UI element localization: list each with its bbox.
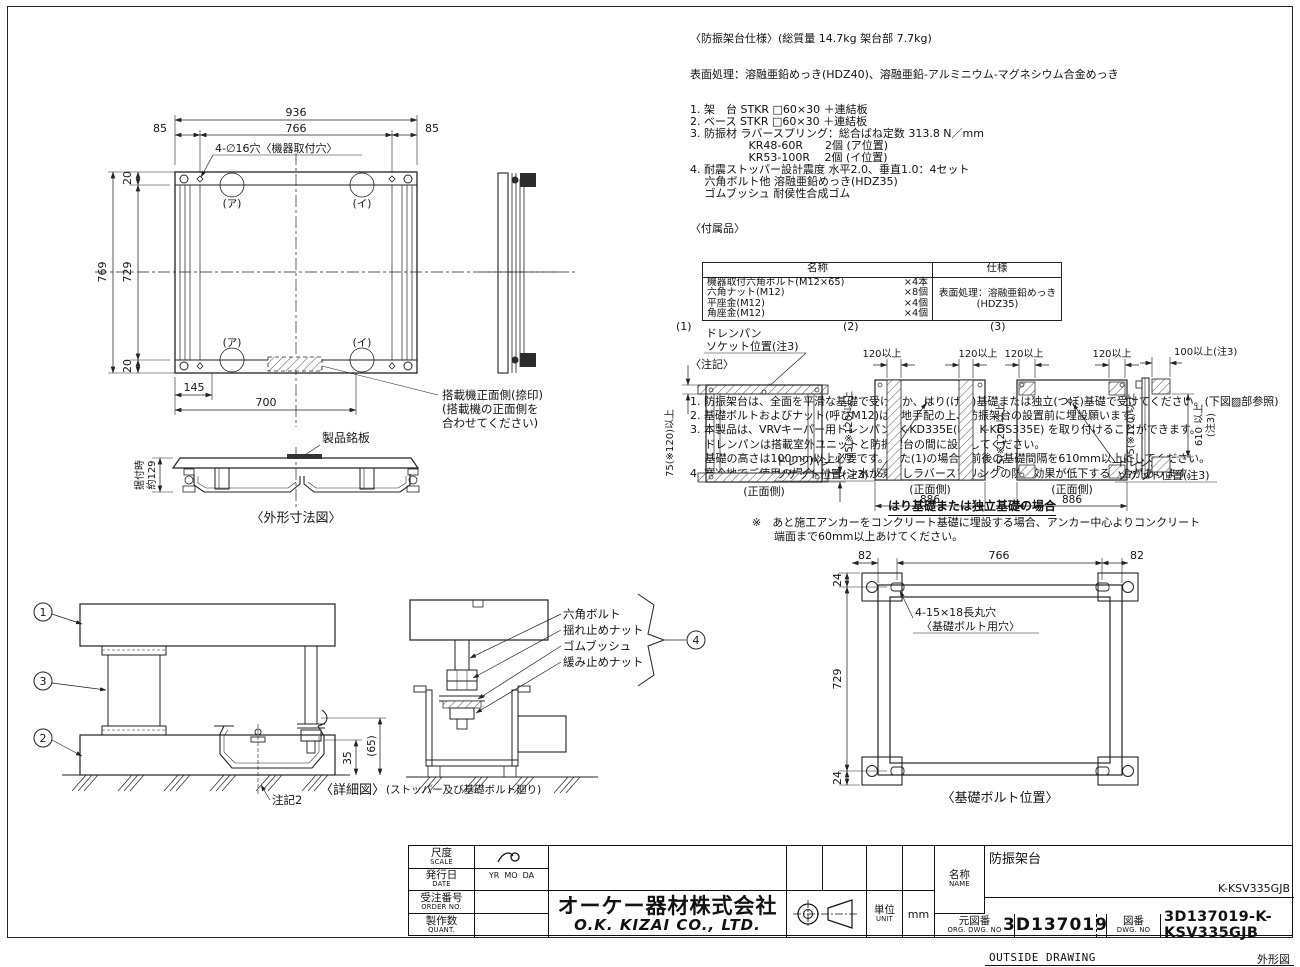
dwg-no-label: 図番DWG. NO: [1107, 914, 1161, 938]
balloon-1: 1: [40, 606, 47, 619]
quantity-label: 製作数QUANT.: [409, 914, 475, 938]
nameplate-label: 製品銘板: [322, 430, 370, 445]
org-dwg-value: 3D137019: [1015, 914, 1097, 938]
anchor-note: ※ あと施工アンカーをコンクリート基礎に埋設する場合、アンカー中心よりコンクリー…: [752, 516, 1200, 543]
bp-dim-82-left: 82: [858, 549, 872, 562]
dim-936: 936: [286, 106, 307, 119]
accessories-title: 〈付属品〉: [690, 223, 1296, 235]
product-name: 防振架台: [989, 848, 1041, 867]
quantity-value: [475, 914, 549, 938]
bp-caption: 〈基礎ボルト位置〉: [941, 791, 1058, 806]
name-upper: 防振架台 K-KSV335GJB: [985, 846, 1294, 898]
detail-caption-sub: (ストッパー及び基礎ボルト廻り): [386, 783, 541, 796]
drain-label-mid-1: ドレンパン: [776, 455, 832, 468]
title-block: 尺度SCALE 発行日DATE YR MO DA 受注番号ORDER NO. 製…: [408, 845, 1293, 936]
dim-65: (65): [366, 735, 378, 757]
projection-cell: [787, 891, 867, 937]
machine-hole-label: 4-∅16穴〈機器取付穴〉: [215, 141, 338, 155]
name-label: 名称NAME: [935, 846, 985, 914]
order-no-value: [475, 891, 549, 914]
spec-items: 1. 架 台 STKR □60×30 ＋連結板2. ベース STKR □60×3…: [690, 104, 1296, 199]
bolt-position-drawing: 82 766 82 24 729 24 4-15×18長丸穴 〈基礎ボルト用穴〉…: [815, 548, 1300, 823]
nameplate-mark: [287, 454, 322, 459]
spec-title: 〈防振架台仕様〉(総質量 14.7kg 架台部 7.7kg): [690, 33, 1296, 45]
accessories-col-name: 名称: [703, 263, 932, 277]
accessories-col-spec: 仕様: [932, 263, 1061, 277]
detail-left-section: [62, 604, 350, 796]
dim-120-2b: 120以上: [958, 348, 997, 360]
dim-75-left-1: 75(※120)以上: [664, 409, 676, 477]
dim-120-3a: 120以上: [1004, 348, 1043, 360]
front-caption-1: (正面側): [743, 485, 785, 498]
install-height-1: 据付時: [133, 460, 146, 490]
dim-886-3: 886: [1062, 494, 1082, 506]
outline-caption: 〈外形寸法図〉: [250, 511, 341, 526]
spec-surface: 表面処理：溶融亜鉛めっき(HDZ40)、溶融亜鉛-アルミニウム-マグネシウム合金…: [690, 69, 1296, 81]
side-view: [484, 173, 558, 373]
bp-dim-729: 729: [831, 669, 844, 690]
bp-dim-24-top: 24: [831, 573, 844, 587]
accessories-rows: 機器取付六角ボルト(M12×65)×4本六角ナット(M12)×8個平座金(M12…: [703, 277, 932, 320]
name-lower: OUTSIDE DRAWING 外形図: [985, 950, 1294, 966]
plan-view-drawing: 936 766 85 85 20 729 20 769 145 700 (ア) …: [10, 95, 660, 545]
no-scale-symbol: [495, 847, 525, 867]
dim-120-2a: 120以上: [862, 348, 901, 360]
pos-a-bottom: (ア): [223, 337, 242, 349]
pos-i-bottom: (イ): [353, 337, 372, 349]
approval-cell-2: [823, 846, 867, 891]
approval-cell-1: [787, 846, 823, 891]
drawing-type-en: OUTSIDE DRAWING: [989, 951, 1096, 964]
date-label: 発行日DATE: [409, 869, 475, 892]
elevation-view: [152, 447, 419, 507]
approval-cell-4: [903, 846, 935, 891]
label-hex-bolt: 六角ボルト: [563, 607, 621, 621]
drain-label-top-2: ソケット位置(注3): [706, 339, 799, 353]
dim-610b: (注3): [1204, 413, 1217, 437]
pos-a-top: (ア): [223, 198, 242, 210]
dim-85-right: 85: [425, 122, 439, 135]
detail-caption: 〈詳細図〉: [320, 782, 385, 798]
dim-145: 145: [184, 381, 205, 394]
drawing-type-jp: 外形図: [1257, 951, 1290, 967]
dim-700: 700: [256, 396, 277, 409]
foundation-diagrams: (1) ドレンパン ソケット位置(注3) 75(※120)以上 75(※120)…: [660, 315, 1300, 520]
model-code: K-KSV335GJB: [1218, 882, 1290, 895]
dim-100: 100以上(注3): [1174, 345, 1237, 358]
company-name-jp: オーケー器材株式会社: [558, 895, 778, 917]
number-row-spacer: [1097, 914, 1107, 938]
bp-hole-label-1: 4-15×18長丸穴: [915, 605, 996, 619]
front-note-1: 搭載機正面側(捺印): [442, 388, 543, 402]
balloon-4: 4: [693, 634, 700, 647]
pos-i-top: (イ): [353, 198, 372, 210]
dim-766: 766: [286, 122, 307, 135]
foundation-caption: はり基礎または独立基礎の場合: [888, 497, 1056, 516]
bp-dim-82-right: 82: [1130, 549, 1144, 562]
dim-75-right-3: 75(※120)以上: [1125, 393, 1137, 461]
dim-729: 729: [121, 262, 134, 283]
dim-20-bottom: 20: [121, 359, 134, 373]
dim-35: 35: [342, 751, 354, 764]
dwg-no-value: 3D137019-K-KSV335GJB: [1161, 914, 1294, 938]
diagram2-num: (2): [843, 320, 859, 333]
diagram1-num: (1): [676, 320, 692, 333]
dim-769: 769: [96, 262, 109, 283]
ground-hatch-left: [72, 775, 328, 791]
detail-drawing: 1 3 2: [18, 578, 718, 813]
dim-20-top: 20: [121, 171, 134, 185]
accessories-surface: 表面処理：溶融亜鉛めっき (HDZ35): [932, 277, 1062, 320]
note2-ref: 注記2: [272, 793, 302, 807]
unit-label: 単位UNIT: [867, 891, 903, 937]
scale-label: 尺度SCALE: [409, 846, 475, 869]
dim-120-3b: 120以上: [1092, 348, 1131, 360]
plan-extension-lines: [108, 115, 417, 415]
order-no-label: 受注番号ORDER NO.: [409, 891, 475, 914]
dim-85-left: 85: [153, 122, 167, 135]
date-value: YR MO DA: [475, 869, 549, 892]
bp-hole-label-2: 〈基礎ボルト用穴〉: [921, 619, 1020, 633]
install-height-2: 約129: [145, 460, 158, 489]
bp-dim-766: 766: [989, 549, 1010, 562]
titleblock-blank: [549, 846, 787, 891]
scale-value: [475, 846, 549, 869]
label-sway-nut: 揺れ止めナット: [563, 623, 644, 637]
front-note-3: 合わせてください): [442, 416, 538, 430]
unit-value: mm: [903, 891, 935, 937]
accessories-header: 名称 仕様: [703, 263, 1061, 278]
label-rubber-bush: ゴムブッシュ: [563, 639, 631, 653]
balloon-2: 2: [40, 732, 47, 745]
approval-cell-3: [867, 846, 903, 891]
accessories-table: 名称 仕様 機器取付六角ボルト(M12×65)×4本六角ナット(M12)×8個平…: [702, 262, 1062, 321]
dim-75-right-1: 75(※120)以上: [843, 391, 855, 459]
brace: [638, 594, 664, 686]
dim-75-left-3: 75(※120)以上: [995, 403, 1007, 471]
bp-dim-24-bottom: 24: [831, 771, 844, 785]
drain-label-top-1: ドレンパン: [706, 327, 762, 340]
drain-label-mid-2: ソケット位置(注3): [776, 467, 869, 481]
plan-dim-lines: [113, 120, 417, 410]
front-stamp-area: [268, 357, 322, 371]
company: オーケー器材株式会社 O.K. KIZAI CO., LTD.: [549, 891, 787, 937]
centerlines: [95, 153, 575, 427]
dim-610a: 610 以上: [1193, 404, 1205, 446]
balloon-3: 3: [40, 675, 47, 688]
label-lock-nut: 緩み止めナット: [563, 655, 644, 669]
spring-position-circles: [220, 173, 374, 372]
front-note-2: (搭載機の正面側を: [442, 402, 539, 416]
diagram3-num: (3): [990, 320, 1006, 333]
third-angle-projection-icon: [792, 896, 862, 932]
company-name-en: O.K. KIZAI CO., LTD.: [574, 917, 761, 934]
